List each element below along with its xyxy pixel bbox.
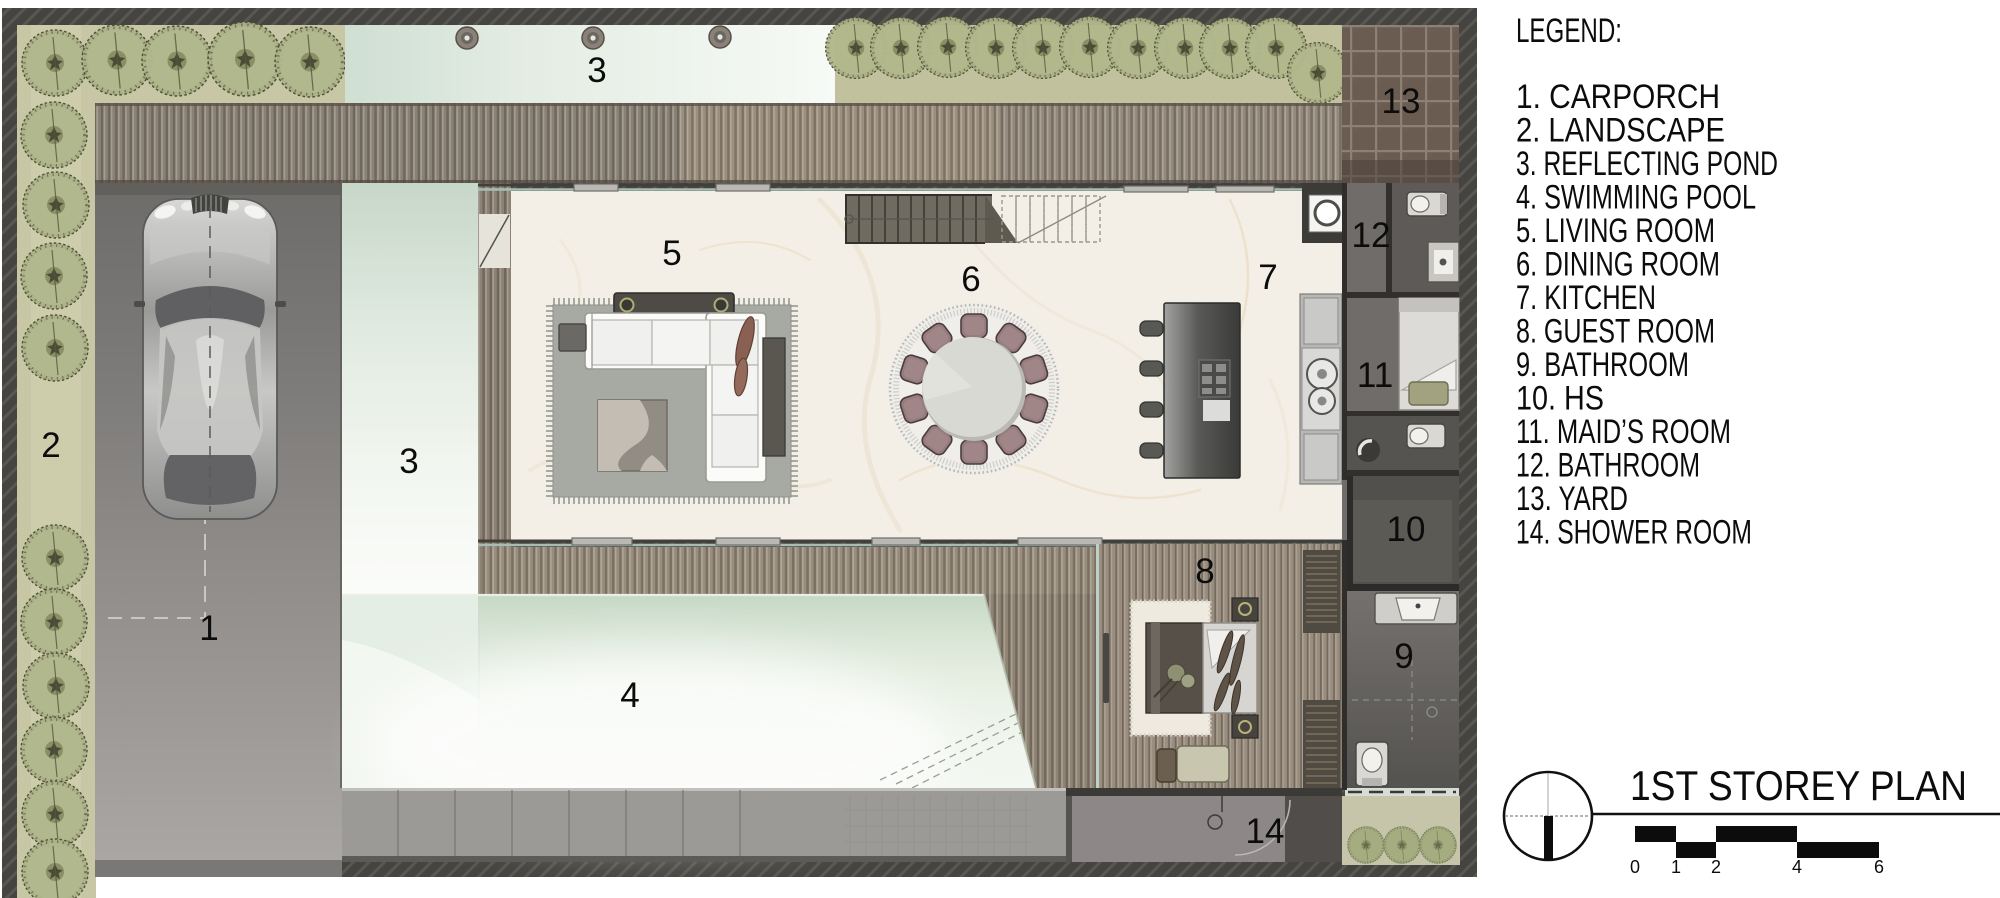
svg-text:3: 3 <box>587 51 606 90</box>
svg-text:1. CARPORCH: 1. CARPORCH <box>1516 78 1720 116</box>
svg-text:0: 0 <box>1630 857 1640 877</box>
svg-text:9. BATHROOM: 9. BATHROOM <box>1516 346 1689 384</box>
svg-text:6: 6 <box>961 260 980 299</box>
svg-text:8: 8 <box>1195 552 1214 591</box>
svg-text:6. DINING ROOM: 6. DINING ROOM <box>1516 246 1720 284</box>
svg-text:6: 6 <box>1874 857 1884 877</box>
svg-text:9: 9 <box>1394 637 1413 676</box>
svg-text:10: 10 <box>1387 510 1426 549</box>
svg-text:2. LANDSCAPE: 2. LANDSCAPE <box>1516 112 1725 150</box>
svg-text:13. YARD: 13. YARD <box>1516 480 1628 518</box>
svg-text:14: 14 <box>1246 812 1285 851</box>
svg-text:5. LIVING ROOM: 5. LIVING ROOM <box>1516 212 1715 250</box>
svg-text:12: 12 <box>1352 216 1391 255</box>
svg-text:7. KITCHEN: 7. KITCHEN <box>1516 279 1656 317</box>
svg-text:2: 2 <box>41 426 60 465</box>
svg-text:1: 1 <box>1671 857 1681 877</box>
svg-text:11. MAID’S ROOM: 11. MAID’S ROOM <box>1516 413 1731 451</box>
svg-text:12. BATHROOM: 12. BATHROOM <box>1516 447 1700 485</box>
svg-text:14. SHOWER ROOM: 14. SHOWER ROOM <box>1516 514 1752 552</box>
svg-text:3: 3 <box>399 442 418 481</box>
svg-text:3. REFLECTING POND: 3. REFLECTING POND <box>1516 145 1778 183</box>
svg-text:4: 4 <box>1792 857 1802 877</box>
svg-text:8. GUEST ROOM: 8. GUEST ROOM <box>1516 313 1715 351</box>
svg-text:4: 4 <box>620 676 639 715</box>
svg-text:5: 5 <box>662 234 681 273</box>
svg-text:1ST STOREY PLAN: 1ST STOREY PLAN <box>1630 762 1967 809</box>
svg-text:10. HS: 10. HS <box>1516 380 1604 418</box>
svg-text:13: 13 <box>1382 82 1421 121</box>
svg-text:11: 11 <box>1357 356 1393 395</box>
svg-text:2: 2 <box>1711 857 1721 877</box>
svg-text:1: 1 <box>199 609 218 648</box>
svg-text:LEGEND:: LEGEND: <box>1516 12 1622 50</box>
svg-text:4. SWIMMING POOL: 4. SWIMMING POOL <box>1516 179 1756 217</box>
svg-text:7: 7 <box>1258 258 1277 297</box>
